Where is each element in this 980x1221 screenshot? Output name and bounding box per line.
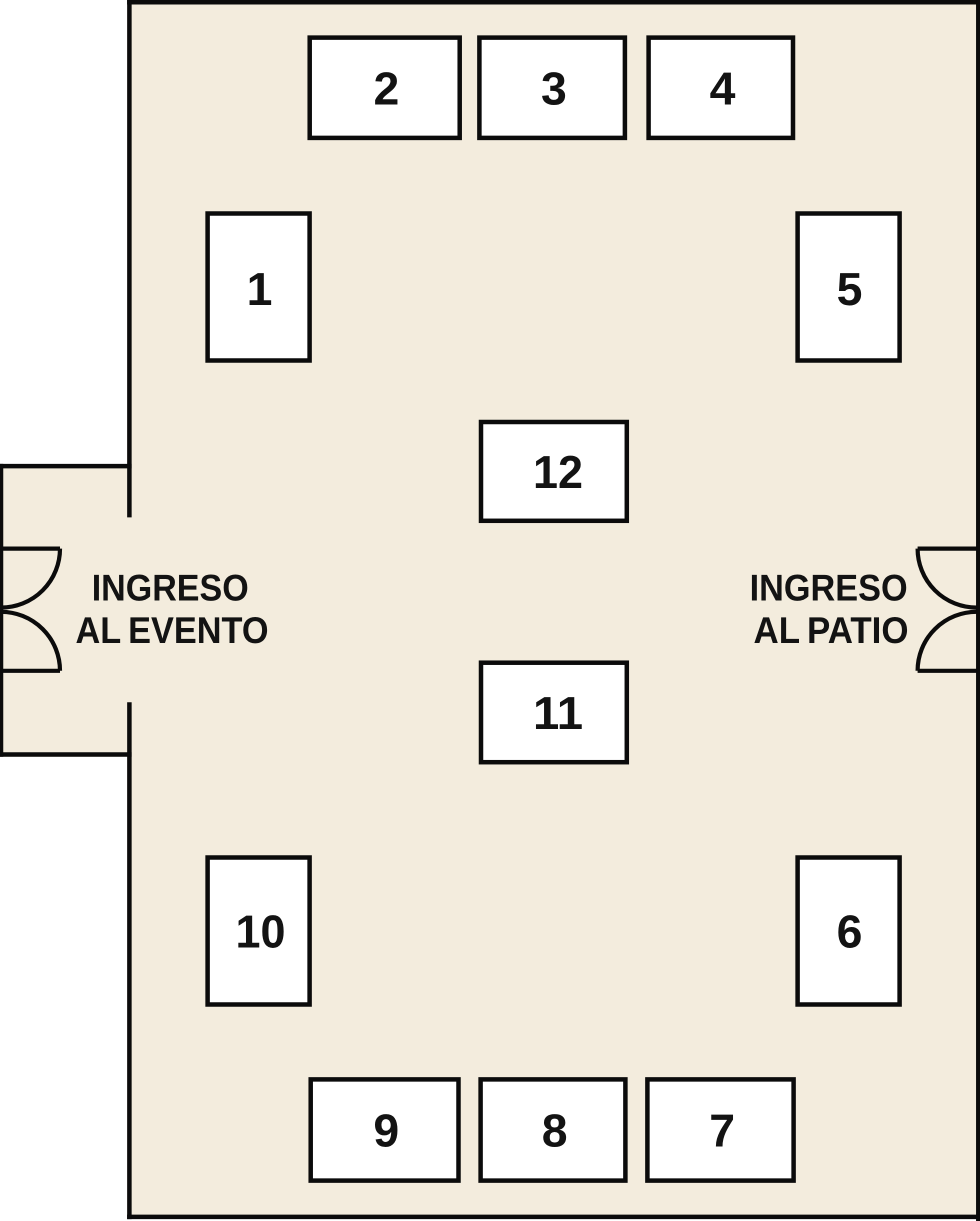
svg-text:3: 3: [541, 62, 567, 114]
svg-text:5: 5: [837, 263, 863, 315]
svg-text:6: 6: [837, 906, 863, 958]
svg-text:7: 7: [709, 1105, 735, 1157]
svg-text:8: 8: [542, 1105, 568, 1157]
svg-text:AL PATIO: AL PATIO: [754, 609, 909, 651]
svg-text:INGRESO: INGRESO: [750, 566, 908, 608]
svg-text:AL EVENTO: AL EVENTO: [76, 609, 269, 651]
svg-text:11: 11: [533, 687, 583, 739]
svg-text:12: 12: [533, 446, 583, 498]
svg-text:1: 1: [247, 263, 273, 315]
svg-text:9: 9: [373, 1105, 399, 1157]
svg-text:2: 2: [373, 62, 399, 114]
svg-text:4: 4: [710, 62, 736, 114]
svg-text:10: 10: [236, 906, 286, 958]
svg-text:INGRESO: INGRESO: [92, 566, 249, 608]
